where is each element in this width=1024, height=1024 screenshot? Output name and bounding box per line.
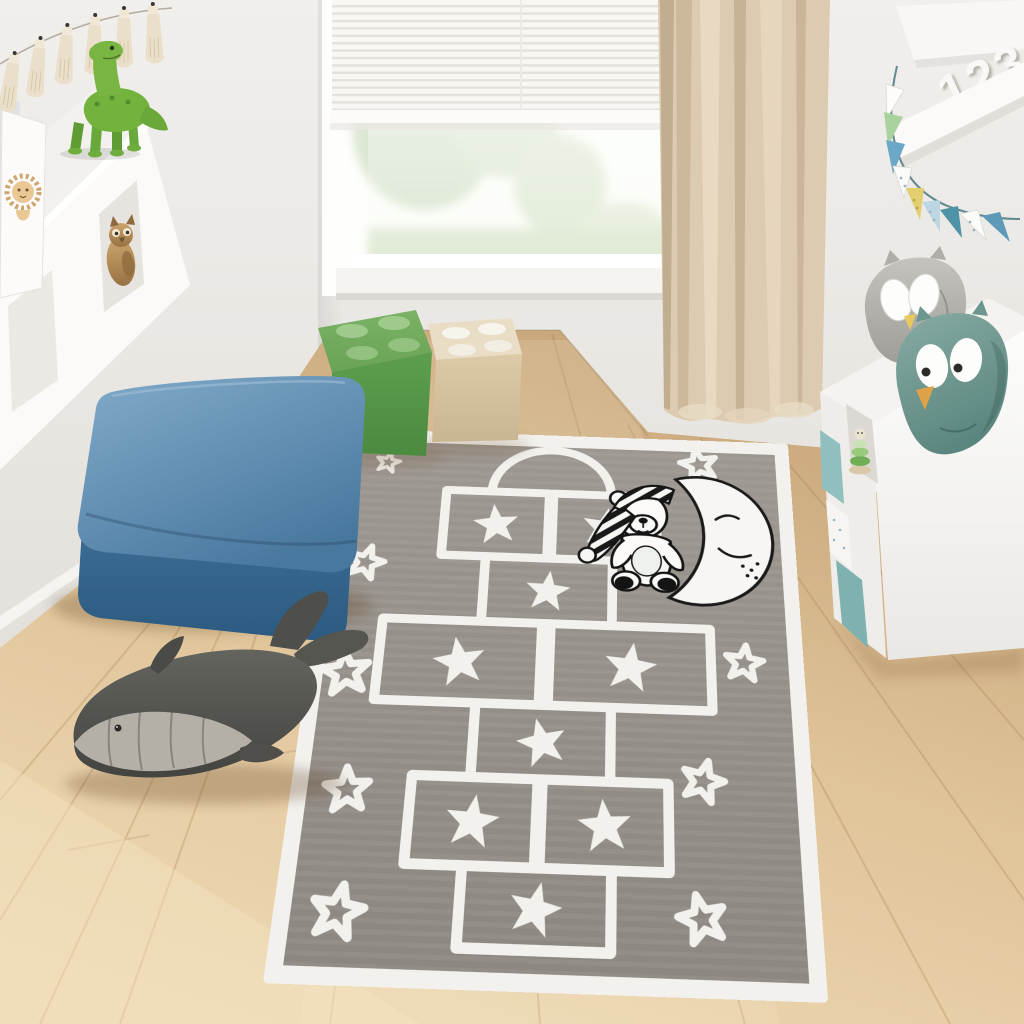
dino-leg bbox=[90, 126, 102, 153]
playroom-photo: 123 bbox=[0, 0, 1024, 1024]
tassel-garland bbox=[0, 2, 172, 114]
dino-eye bbox=[110, 46, 114, 50]
bunting-flag-yellow bbox=[906, 188, 924, 220]
bunting-flag-white-dot2 bbox=[960, 210, 986, 240]
bunting-flag-lightblue bbox=[922, 200, 940, 232]
whale-eye bbox=[115, 725, 122, 732]
foreground-layer: 123 bbox=[0, 0, 1024, 1024]
beige-lego-box bbox=[428, 318, 522, 442]
curtain bbox=[658, 0, 830, 424]
whale-flipper bbox=[240, 744, 284, 763]
number-shelf: 123 bbox=[884, 0, 1024, 167]
bunting-flag-blue2 bbox=[982, 212, 1010, 242]
picture-frames bbox=[0, 96, 46, 298]
frame-front bbox=[0, 110, 46, 298]
